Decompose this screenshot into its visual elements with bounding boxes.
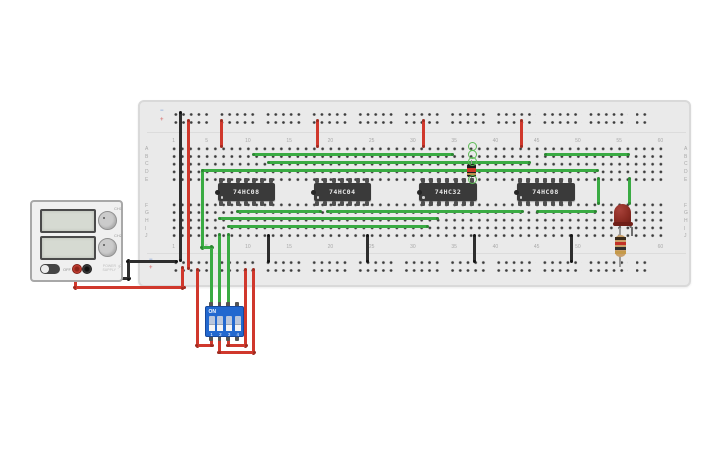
row-label: H xyxy=(684,218,688,224)
chip-pin xyxy=(535,201,539,206)
chip-pin xyxy=(323,178,327,183)
row-label: I xyxy=(684,226,685,232)
psu-off-label: OFF xyxy=(63,267,71,272)
chip-pin xyxy=(535,178,539,183)
resistor-lead-bottom xyxy=(619,256,621,267)
dip-number: 3 xyxy=(228,332,231,338)
wire-vcc-bus[interactable] xyxy=(187,120,190,269)
column-label: 35 xyxy=(451,138,457,144)
ic-74hc32[interactable]: 74HC32 xyxy=(419,183,477,201)
column-label: 5 xyxy=(205,138,208,144)
board-divider-top xyxy=(147,132,686,133)
row-label: F xyxy=(145,203,148,209)
chip-pin xyxy=(219,178,223,183)
chip-pin xyxy=(332,201,336,206)
wire-psu-positive[interactable] xyxy=(74,286,185,289)
wire-gnd-jumper[interactable] xyxy=(366,235,369,262)
row-label: B xyxy=(145,154,148,160)
chip-pin xyxy=(551,201,555,206)
chip-pin xyxy=(421,178,425,183)
row-label: J xyxy=(684,233,687,239)
column-label: 55 xyxy=(616,138,622,144)
row-label: H xyxy=(145,218,149,224)
led-anode-leg xyxy=(631,227,633,237)
chip-pin xyxy=(445,178,449,183)
row-label: E xyxy=(684,177,687,183)
led-bulb xyxy=(614,204,631,223)
chip-pin xyxy=(365,201,369,206)
chip-pin xyxy=(260,201,264,206)
wire-dip-input-1[interactable] xyxy=(210,246,213,304)
psu-ch1-label: CH1 xyxy=(114,206,122,211)
column-label: 60 xyxy=(658,138,664,144)
pin1-marker xyxy=(317,196,320,199)
column-label: 15 xyxy=(286,138,292,144)
column-label: 10 xyxy=(245,138,251,144)
connection-highlight-ring xyxy=(468,157,477,166)
wire-dip-input-3[interactable] xyxy=(227,234,230,304)
circuit-canvas: − + − + 151015202530354045505560 1510152… xyxy=(0,0,725,453)
dip-switch[interactable]: ON 1234 xyxy=(205,306,244,337)
column-label: 15 xyxy=(286,244,292,250)
knob-indicator xyxy=(103,217,105,219)
wire-signal[interactable] xyxy=(597,178,600,205)
row-label: D xyxy=(145,169,149,175)
wire-dip-vcc-1[interactable] xyxy=(196,269,199,347)
lightning-icon: ⚡ xyxy=(117,263,122,271)
wire-gnd-jumper[interactable] xyxy=(473,235,476,262)
chip-pin xyxy=(340,201,344,206)
psu-negative-terminal[interactable] xyxy=(82,264,92,274)
wire-signal[interactable] xyxy=(537,210,596,213)
chip-pin xyxy=(348,178,352,183)
row-label: I xyxy=(145,226,146,232)
chip-pin xyxy=(526,178,530,183)
rail-pos-symbol: + xyxy=(160,117,164,123)
chip-pin xyxy=(340,178,344,183)
wire-gnd-bus[interactable] xyxy=(179,112,182,261)
row-label: G xyxy=(684,210,688,216)
dip-number: 4 xyxy=(237,332,240,338)
row-label: C xyxy=(684,161,688,167)
chip-pin xyxy=(543,201,547,206)
chip-pin xyxy=(244,178,248,183)
row-label: F xyxy=(684,203,687,209)
knob-indicator xyxy=(103,244,105,246)
column-label: 10 xyxy=(245,244,251,250)
chip-pin xyxy=(244,201,248,206)
wire-vcc-tap[interactable] xyxy=(220,120,223,147)
column-label: 1 xyxy=(172,138,175,144)
pin1-marker xyxy=(221,196,224,199)
chip-pin xyxy=(470,201,474,206)
wire-signal[interactable] xyxy=(268,161,530,164)
column-label: 25 xyxy=(369,244,375,250)
psu-display-ch2 xyxy=(40,236,96,260)
ic-74hc04[interactable]: 74HC04 xyxy=(314,183,372,201)
chip-pin xyxy=(462,178,466,183)
led-flange xyxy=(613,222,633,226)
ic-74hc08-1[interactable]: 74HC08 xyxy=(218,183,276,201)
chip-pin xyxy=(454,178,458,183)
column-label: 45 xyxy=(534,138,540,144)
chip-pin xyxy=(356,201,360,206)
column-label: 50 xyxy=(575,138,581,144)
wire-signal[interactable] xyxy=(228,225,428,228)
chip-pin xyxy=(260,178,264,183)
row-label: J xyxy=(145,233,148,239)
chip-pin xyxy=(568,201,572,206)
wire-signal[interactable] xyxy=(628,178,631,205)
chip-pin xyxy=(227,201,231,206)
row-label: B xyxy=(684,154,687,160)
row-label: C xyxy=(145,161,149,167)
row-label: A xyxy=(145,146,148,152)
chip-pin xyxy=(429,178,433,183)
chip-pin xyxy=(356,178,360,183)
chip-pin xyxy=(454,201,458,206)
breadboard-rail-neg-top[interactable] xyxy=(172,111,648,118)
chip-pin xyxy=(252,201,256,206)
chip-pin xyxy=(315,178,319,183)
psu-knob-ch1[interactable] xyxy=(98,211,117,230)
chip-pin xyxy=(315,201,319,206)
wire-signal[interactable] xyxy=(237,210,321,213)
chip-pin xyxy=(429,201,433,206)
chip-pin xyxy=(559,178,563,183)
chip-pin xyxy=(269,178,273,183)
chip-pin xyxy=(437,178,441,183)
wire-vcc-tap[interactable] xyxy=(316,120,319,147)
chip-pin xyxy=(437,201,441,206)
column-label: 25 xyxy=(369,138,375,144)
resistor-band-red xyxy=(615,242,627,245)
dip-number: 2 xyxy=(219,332,222,338)
row-label: D xyxy=(684,169,688,175)
chip-pin xyxy=(323,201,327,206)
chip-pin xyxy=(348,201,352,206)
column-label: 30 xyxy=(410,138,416,144)
wire-signal[interactable] xyxy=(545,153,629,156)
column-label: 30 xyxy=(410,244,416,250)
chip-pin xyxy=(236,201,240,206)
ic-74hc08-2[interactable]: 74HC08 xyxy=(517,183,575,201)
dip-slider-3[interactable] xyxy=(226,316,232,331)
chip-pin xyxy=(559,201,563,206)
column-label: 35 xyxy=(451,244,457,250)
row-label: A xyxy=(684,146,687,152)
resistor-band-black xyxy=(615,247,627,250)
chip-pin xyxy=(365,178,369,183)
dip-slider-handle[interactable] xyxy=(235,324,241,332)
wire-vcc-tap[interactable] xyxy=(520,120,523,147)
wire-dip-vcc-3[interactable] xyxy=(227,344,248,347)
wire-gnd-jumper[interactable] xyxy=(267,235,270,262)
dip-slider-2[interactable] xyxy=(217,316,223,331)
chip-pin xyxy=(227,178,231,183)
wire-dip-vcc-3[interactable] xyxy=(244,269,247,347)
wire-signal[interactable] xyxy=(202,169,598,172)
resistor-band-gold xyxy=(615,251,627,254)
psu-display-ch1 xyxy=(40,209,96,233)
column-label: 40 xyxy=(493,138,499,144)
wire-psu-positive[interactable] xyxy=(181,267,184,289)
chip-pin xyxy=(526,201,530,206)
chip-pin xyxy=(445,201,449,206)
chip-pin xyxy=(518,178,522,183)
chip-pin xyxy=(219,201,223,206)
dip-slider-1[interactable] xyxy=(209,316,215,331)
wire-gnd-jumper[interactable] xyxy=(570,235,573,262)
dip-slider-handle[interactable] xyxy=(209,324,215,332)
chip-pin xyxy=(551,178,555,183)
column-label: 50 xyxy=(575,244,581,250)
led-red[interactable] xyxy=(613,204,633,226)
row-label: G xyxy=(145,210,149,216)
chip-pin xyxy=(269,201,273,206)
column-label: 20 xyxy=(328,244,334,250)
chip-label: 74HC04 xyxy=(314,188,372,196)
resistor-band-red xyxy=(467,168,477,172)
column-label: 60 xyxy=(658,244,664,250)
chip-pin xyxy=(518,201,522,206)
psu-power-toggle[interactable] xyxy=(40,264,60,274)
dip-number: 1 xyxy=(210,332,213,338)
dip-slider-handle[interactable] xyxy=(226,324,232,332)
chip-pin xyxy=(332,178,336,183)
chip-pin xyxy=(568,178,572,183)
wire-dip-vcc-2[interactable] xyxy=(252,269,255,355)
toggle-knob xyxy=(41,265,49,273)
chip-pin xyxy=(236,178,240,183)
column-label: 20 xyxy=(328,138,334,144)
psu-name-label: POWER SUPPLY xyxy=(94,264,116,272)
resistor[interactable] xyxy=(615,235,627,258)
wire-vcc-tap[interactable] xyxy=(422,120,425,147)
chip-pin xyxy=(252,178,256,183)
column-label: 1 xyxy=(172,244,175,250)
row-label: E xyxy=(145,177,148,183)
breadboard-rail-neg-bottom[interactable] xyxy=(172,259,648,266)
wire-signal[interactable] xyxy=(253,153,453,156)
pin1-marker xyxy=(520,196,523,199)
power-supply[interactable]: CH1 CH2 OFF POWER SUPPLY ⚡ xyxy=(30,200,123,282)
wire-dip-input-2[interactable] xyxy=(218,234,221,304)
chip-label: 74HC08 xyxy=(517,188,575,196)
breadboard-rail-pos-top[interactable] xyxy=(172,119,648,126)
wire-psu-negative[interactable] xyxy=(127,260,130,280)
chip-label: 74HC08 xyxy=(218,188,276,196)
connection-highlight-ring xyxy=(468,175,477,184)
dip-on-label: ON xyxy=(209,309,217,315)
psu-ch2-label: CH2 xyxy=(114,233,122,238)
rail-pos-symbol: + xyxy=(149,265,153,271)
chip-pin xyxy=(462,201,466,206)
wire-signal[interactable] xyxy=(327,210,523,213)
column-label: 40 xyxy=(493,244,499,250)
wire-psu-negative[interactable] xyxy=(127,260,177,263)
psu-knob-ch2[interactable] xyxy=(98,238,117,257)
chip-pin xyxy=(543,178,547,183)
dip-slider-4[interactable] xyxy=(235,316,241,331)
chip-label: 74HC32 xyxy=(419,188,477,196)
wire-signal[interactable] xyxy=(219,217,438,220)
chip-pin xyxy=(421,201,425,206)
wire-dip-vcc-2[interactable] xyxy=(218,351,255,354)
column-label: 45 xyxy=(534,244,540,250)
breadboard-holes-rows-f-j[interactable] xyxy=(170,201,666,240)
psu-positive-terminal[interactable] xyxy=(72,264,82,274)
rail-neg-symbol: − xyxy=(160,108,164,114)
dip-slider-handle[interactable] xyxy=(217,324,223,332)
pin1-marker xyxy=(422,196,425,199)
resistor-band-brown xyxy=(615,237,627,240)
wire-dip-input-1[interactable] xyxy=(201,170,204,249)
